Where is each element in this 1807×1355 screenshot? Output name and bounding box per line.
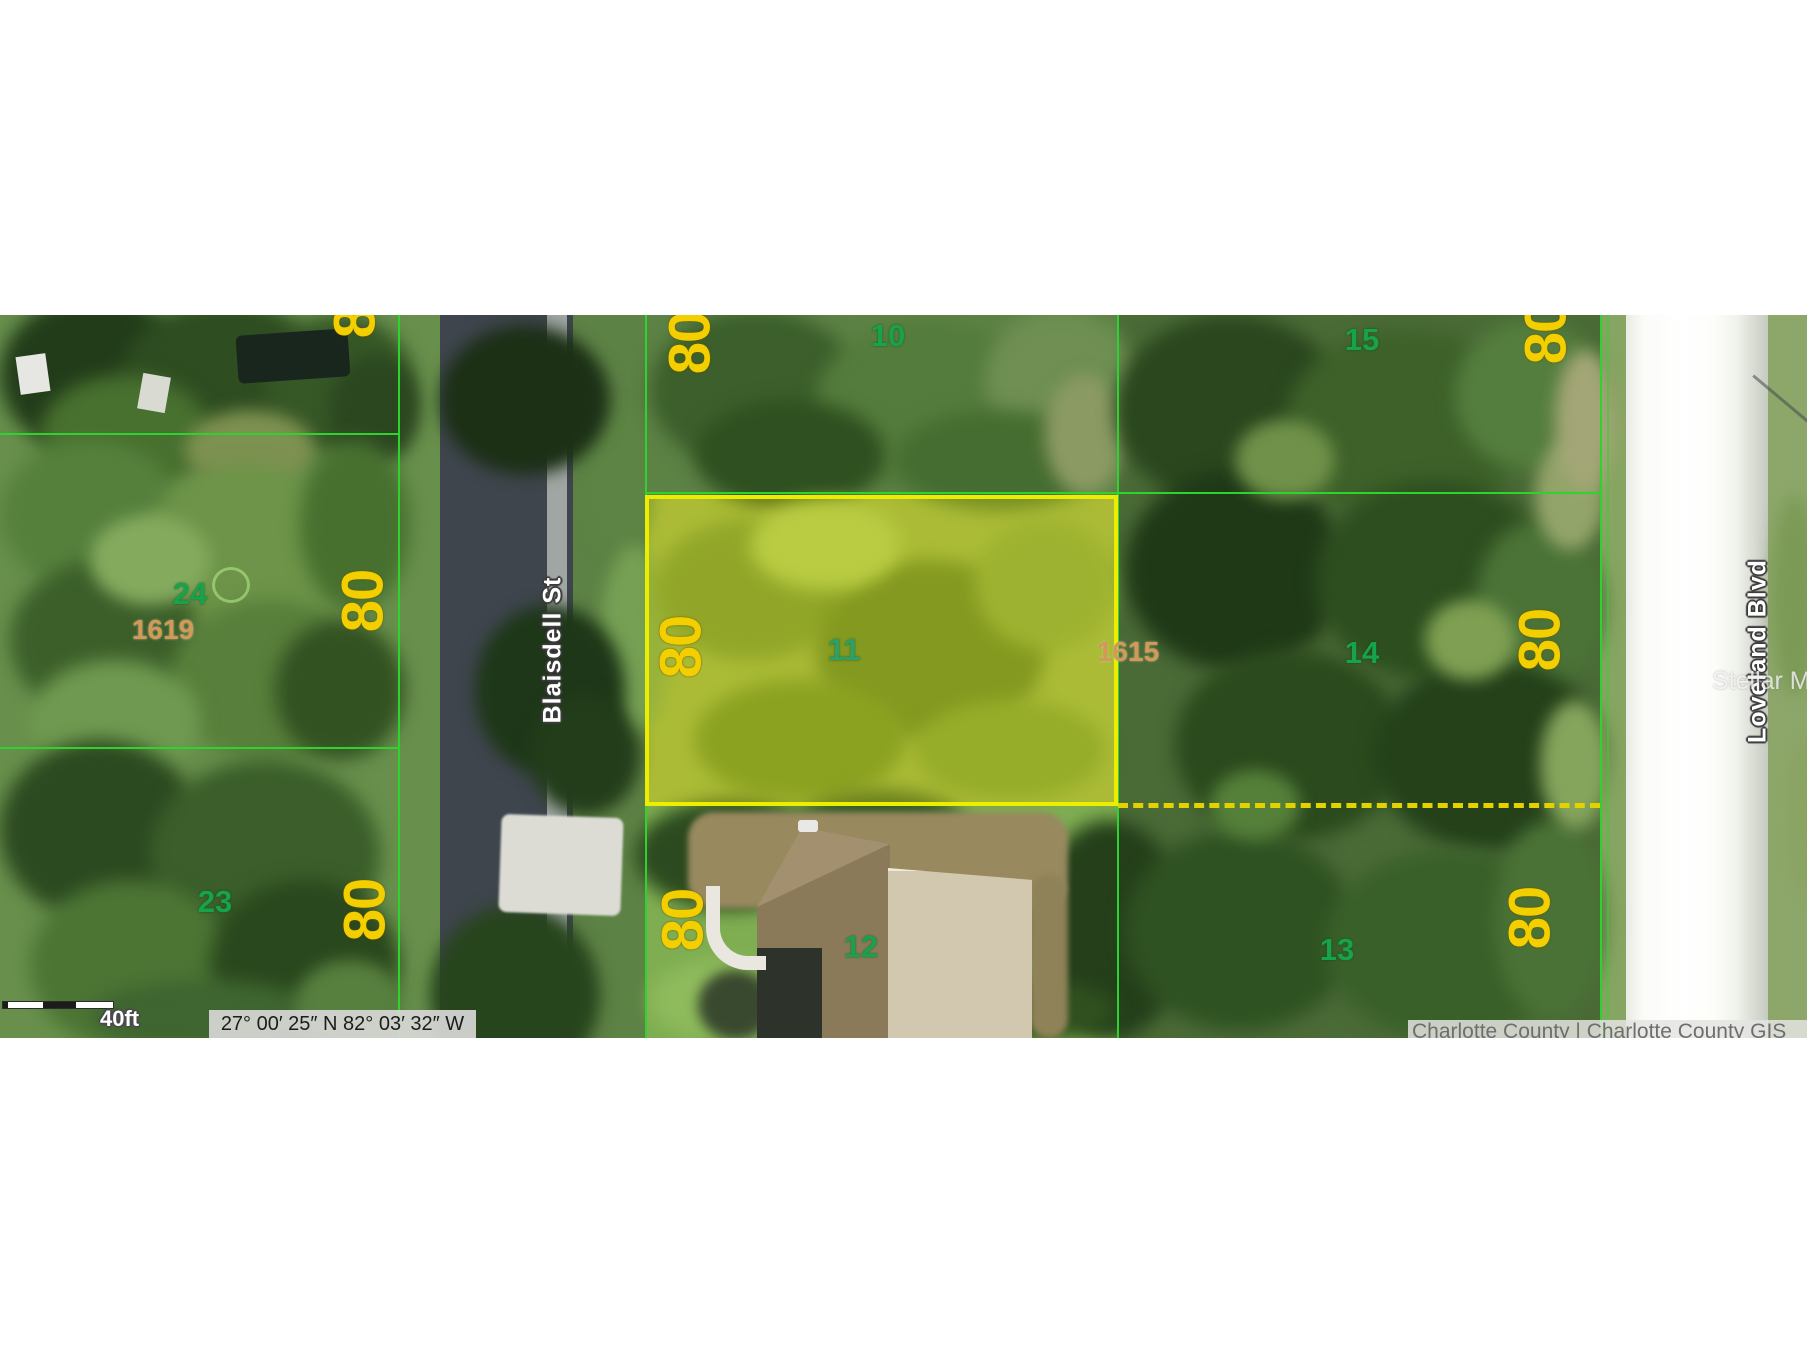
scale-seg: [43, 1002, 76, 1008]
parcel-line-right-of-way: [1607, 315, 1609, 1038]
parcel-line-lot11-lot14-north: [645, 492, 1600, 494]
foliage-blob: [1555, 350, 1615, 490]
lot-number-13: 13: [1320, 932, 1354, 968]
lot-number-24: 24: [173, 576, 207, 612]
cleared-dirt-east: [1030, 875, 1068, 1038]
scale-label: 40ft: [100, 1006, 139, 1032]
highlighted-parcel-lot-11[interactable]: [645, 495, 1118, 806]
dimension-label: 80: [322, 315, 389, 338]
foliage-blob: [1425, 600, 1515, 680]
dimension-label: 80: [1513, 315, 1580, 364]
parcel-line-east-block-east: [1600, 315, 1602, 1038]
lot-number-12: 12: [844, 929, 878, 965]
lot-number-15: 15: [1345, 322, 1379, 358]
coordinates-readout: 27° 00′ 25″ N 82° 03′ 32″ W: [209, 1010, 476, 1038]
parcel-line-lot23-north: [0, 747, 398, 749]
parcel-id-1615: 1615: [1097, 636, 1159, 668]
lot-number-10: 10: [871, 318, 905, 354]
foliage-blob: [1045, 375, 1125, 495]
car-dot: [798, 820, 818, 832]
dashed-boundary-south-lot14: [1118, 803, 1600, 808]
dimension-label: 80: [332, 879, 399, 942]
tree-circle-mark: [212, 567, 250, 603]
street-label-blaisdell: Blaisdell St: [539, 577, 568, 724]
scale-seg: [8, 1002, 43, 1008]
dimension-label: 80: [657, 315, 724, 374]
parcel-id-1619: 1619: [132, 614, 194, 646]
screenshot-page: 80 80 80 80 80 80 80 80 80 10 15 24 11 1…: [0, 0, 1807, 1355]
gis-map-canvas[interactable]: 80 80 80 80 80 80 80 80 80 10 15 24 11 1…: [0, 315, 1807, 1038]
driveway-apron: [498, 814, 623, 916]
white-shed: [16, 353, 51, 395]
dimension-label: 80: [648, 616, 715, 679]
dimension-label: 80: [1507, 609, 1574, 672]
street-label-loveland: Loveland Blvd: [1744, 559, 1773, 743]
lot-number-14: 14: [1345, 635, 1379, 671]
parcel-line-lot24-north: [0, 433, 398, 435]
lot-number-23: 23: [198, 884, 232, 920]
foliage-blob: [275, 620, 405, 760]
lot-number-11: 11: [828, 632, 861, 668]
watermark: Stellar MLS: [1712, 667, 1807, 696]
dimension-label: 80: [1497, 887, 1564, 950]
house-shadow-garage: [757, 948, 822, 1038]
scale-bar: [2, 1001, 114, 1009]
dimension-label: 80: [650, 889, 717, 952]
foliage-blob: [1125, 830, 1355, 1030]
foliage-blob: [1235, 420, 1335, 500]
dimension-label: 80: [330, 570, 397, 633]
attribution-label: Charlotte County | Charlotte County GIS: [1408, 1020, 1807, 1038]
foliage-blob: [440, 325, 610, 475]
house-roof-beige-section: [888, 868, 1032, 1038]
